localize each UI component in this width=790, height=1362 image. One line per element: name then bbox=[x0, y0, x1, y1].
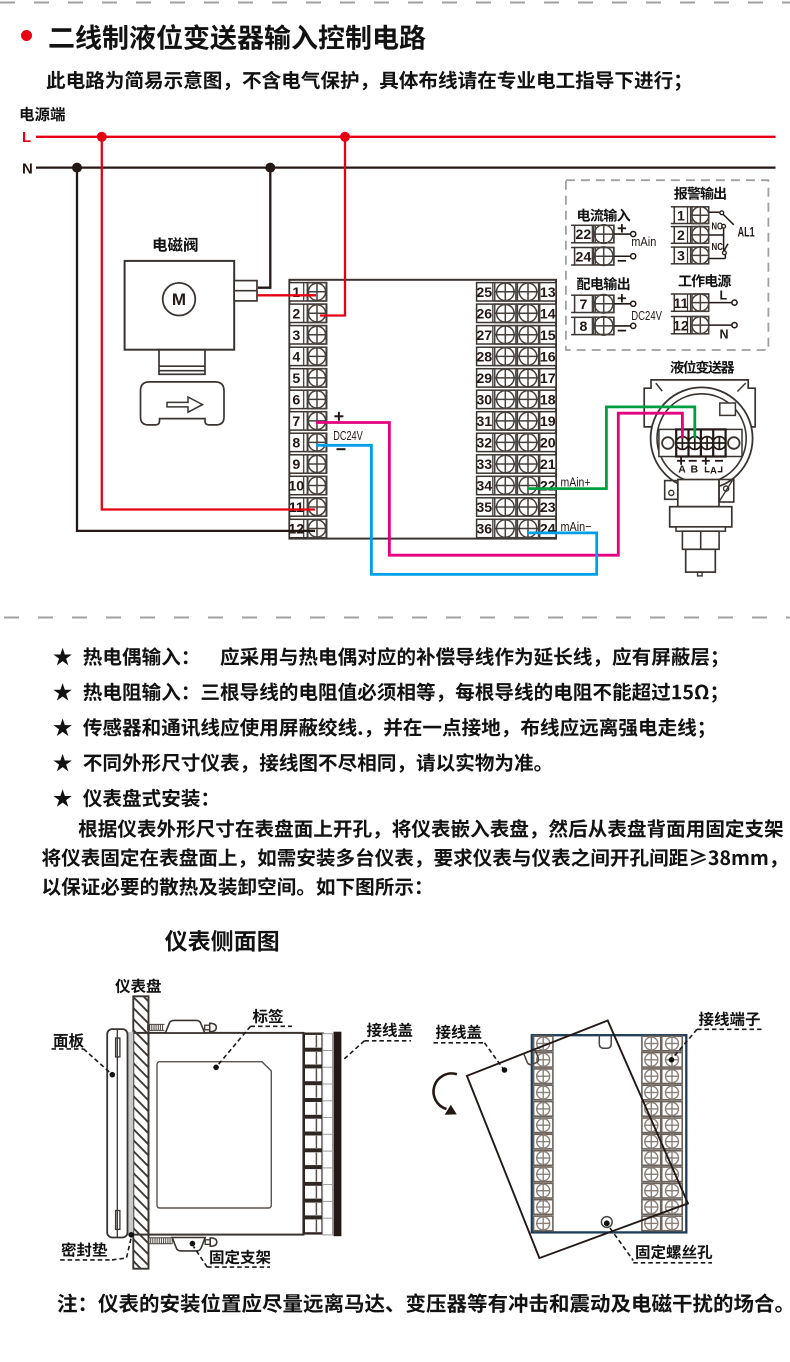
svg-text:L: L bbox=[22, 129, 31, 146]
svg-text:14: 14 bbox=[540, 307, 556, 323]
svg-text:M: M bbox=[172, 290, 186, 309]
svg-text:23: 23 bbox=[540, 500, 556, 516]
svg-text:L: L bbox=[720, 289, 728, 303]
svg-text:9: 9 bbox=[292, 457, 300, 473]
svg-text:DC24V: DC24V bbox=[333, 429, 363, 443]
svg-text:32: 32 bbox=[476, 436, 492, 452]
svg-text:28: 28 bbox=[476, 350, 492, 366]
svg-text:mAin+: mAin+ bbox=[561, 474, 591, 489]
svg-text:11: 11 bbox=[673, 296, 688, 312]
svg-text:36: 36 bbox=[476, 522, 492, 538]
svg-text:3: 3 bbox=[677, 249, 685, 265]
svg-text:10: 10 bbox=[288, 479, 304, 495]
svg-text:27: 27 bbox=[476, 328, 492, 344]
svg-text:3: 3 bbox=[292, 328, 300, 344]
svg-text:20: 20 bbox=[540, 436, 556, 452]
svg-text:22: 22 bbox=[540, 479, 556, 495]
svg-text:24: 24 bbox=[576, 249, 592, 265]
svg-text:1: 1 bbox=[677, 208, 685, 224]
svg-text:1: 1 bbox=[292, 285, 300, 301]
svg-text:7: 7 bbox=[580, 297, 588, 313]
svg-text:5: 5 bbox=[292, 371, 300, 387]
svg-text:29: 29 bbox=[476, 371, 492, 387]
svg-text:15: 15 bbox=[540, 328, 556, 344]
svg-text:6: 6 bbox=[292, 393, 300, 409]
svg-text:8: 8 bbox=[580, 319, 588, 335]
svg-text:30: 30 bbox=[476, 393, 492, 409]
svg-text:4: 4 bbox=[292, 350, 300, 366]
svg-text:22: 22 bbox=[576, 227, 592, 243]
svg-text:A: A bbox=[710, 466, 717, 477]
svg-text:13: 13 bbox=[540, 285, 556, 301]
svg-text:mAin: mAin bbox=[631, 235, 656, 249]
svg-text:N: N bbox=[22, 161, 33, 178]
svg-text:NC: NC bbox=[712, 241, 724, 253]
svg-text:DC24V: DC24V bbox=[631, 309, 662, 323]
svg-text:16: 16 bbox=[540, 350, 556, 366]
svg-text:12: 12 bbox=[673, 318, 689, 334]
svg-text:N: N bbox=[720, 328, 729, 342]
svg-text:7: 7 bbox=[292, 414, 300, 430]
svg-text:B: B bbox=[691, 464, 699, 476]
svg-text:8: 8 bbox=[292, 436, 300, 452]
svg-text:24: 24 bbox=[540, 522, 556, 538]
svg-text:25: 25 bbox=[476, 285, 492, 301]
svg-text:34: 34 bbox=[476, 479, 492, 495]
svg-text:31: 31 bbox=[476, 414, 492, 430]
svg-text:12: 12 bbox=[288, 522, 304, 538]
svg-text:17: 17 bbox=[540, 371, 556, 387]
svg-text:21: 21 bbox=[540, 457, 556, 473]
svg-text:A: A bbox=[678, 464, 686, 476]
svg-text:35: 35 bbox=[476, 500, 492, 516]
svg-text:19: 19 bbox=[540, 414, 556, 430]
svg-text:26: 26 bbox=[476, 307, 492, 323]
svg-text:18: 18 bbox=[540, 393, 556, 409]
svg-text:2: 2 bbox=[292, 307, 300, 323]
svg-text:33: 33 bbox=[476, 457, 492, 473]
svg-text:11: 11 bbox=[289, 500, 304, 516]
svg-text:2: 2 bbox=[677, 228, 685, 244]
svg-text:AL1: AL1 bbox=[738, 225, 755, 240]
